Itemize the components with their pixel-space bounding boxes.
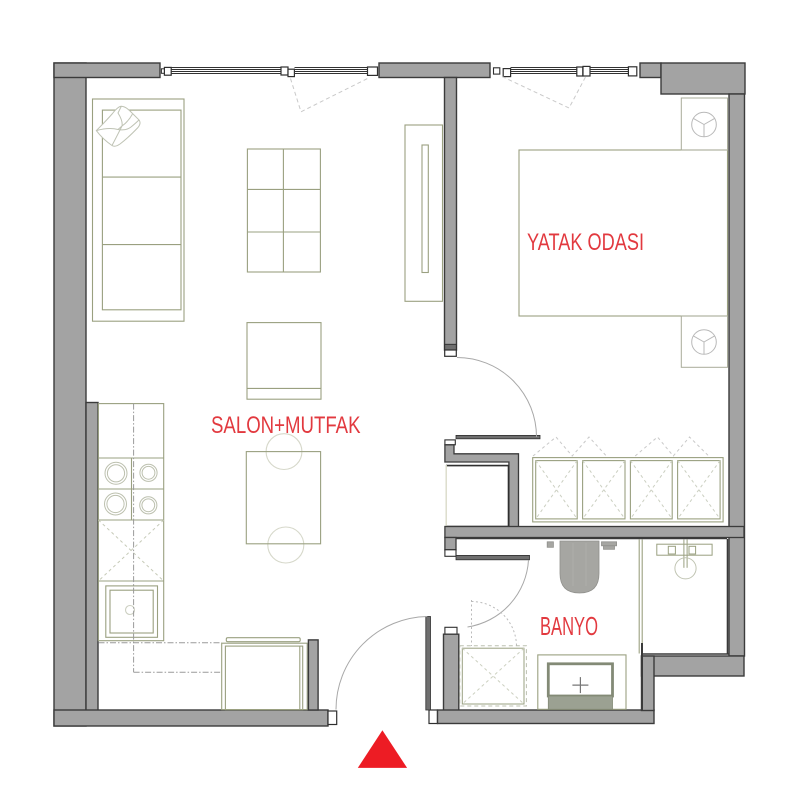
svg-text:BANYO: BANYO xyxy=(540,613,598,641)
svg-text:SALON+MUTFAK: SALON+MUTFAK xyxy=(211,412,361,439)
svg-text:YATAK ODASI: YATAK ODASI xyxy=(527,229,644,256)
